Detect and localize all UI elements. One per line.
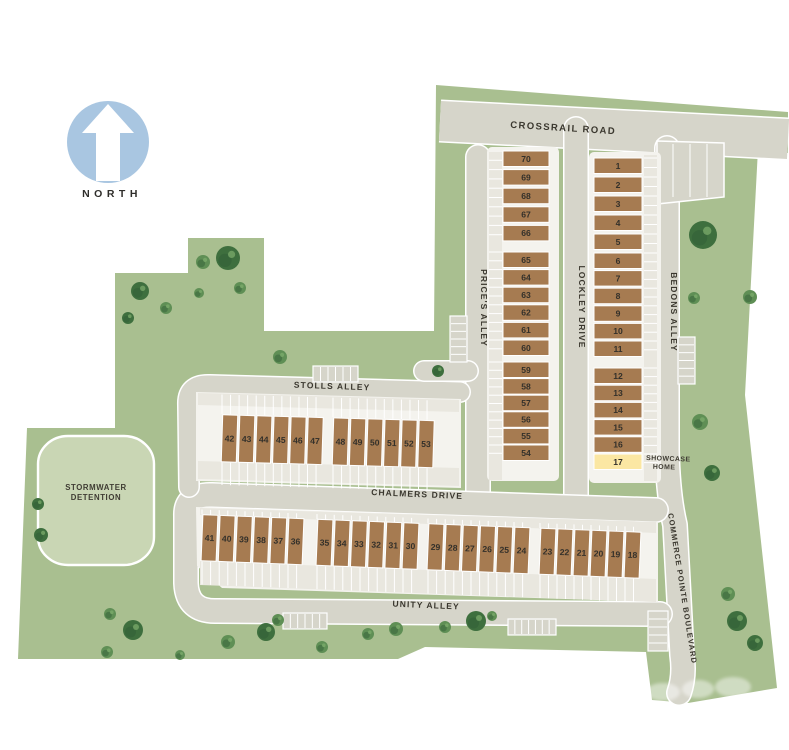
tree (194, 288, 204, 298)
lot-number: 49 (353, 437, 363, 447)
lot-69: 69 (503, 170, 549, 186)
lot-54: 54 (503, 445, 549, 461)
lot-17-showcase-home: 17 (594, 454, 642, 470)
lot-47: 47 (307, 417, 323, 464)
lot-number: 26 (482, 544, 492, 554)
lot-number: 69 (521, 172, 531, 182)
tree (32, 498, 44, 510)
lot-number: 11 (613, 344, 622, 354)
lot-number: 65 (521, 255, 531, 265)
lot-61: 61 (503, 322, 549, 338)
lot-number: 24 (517, 545, 527, 555)
lot-number: 61 (521, 325, 531, 335)
lot-22: 22 (556, 529, 573, 576)
lot-24: 24 (513, 527, 530, 574)
showcase-label-line2: HOME (653, 464, 676, 472)
stormwater-label-line2: DETENTION (71, 493, 121, 502)
prices-alley-label: PRICE'S ALLEY (479, 269, 489, 347)
lot-39: 39 (235, 516, 252, 563)
tree (234, 282, 246, 294)
lot-number: 12 (613, 371, 623, 381)
lot-number: 41 (205, 533, 215, 543)
lot-number: 14 (613, 405, 623, 415)
lot-number: 20 (594, 548, 604, 558)
tree (272, 614, 284, 626)
lot-53: 53 (418, 420, 434, 467)
lot-number: 43 (242, 434, 252, 444)
lot-number: 13 (613, 388, 623, 398)
lot-number: 18 (628, 550, 638, 560)
lot-28: 28 (444, 524, 461, 571)
east-driveway-strip (644, 155, 657, 481)
lot-number: 45 (276, 435, 286, 445)
lot-number: 31 (388, 540, 398, 550)
site-plan-map: 7069686766656463626160595857565554123456… (0, 0, 789, 750)
lot-70: 70 (503, 151, 549, 167)
lot-number: 70 (521, 154, 531, 164)
lot-31: 31 (385, 522, 402, 569)
lot-33: 33 (350, 521, 367, 568)
lot-number: 40 (222, 534, 232, 544)
lot-66: 66 (503, 225, 549, 241)
north-label: NORTH (82, 188, 142, 200)
lot-number: 53 (421, 439, 431, 449)
lot-55: 55 (503, 428, 549, 444)
lot-19: 19 (607, 531, 624, 578)
tree (131, 282, 149, 300)
lockley-drive-label: LOCKLEY DRIVE (577, 265, 587, 348)
lot-number: 2 (616, 180, 621, 190)
lot-59: 59 (503, 362, 549, 378)
lot-5: 5 (594, 234, 642, 250)
lot-number: 38 (256, 535, 266, 545)
lot-44: 44 (255, 416, 271, 463)
lot-52: 52 (401, 420, 417, 467)
lot-32: 32 (368, 521, 385, 568)
lot-number: 42 (225, 433, 235, 443)
lot-number: 7 (616, 273, 621, 283)
lot-number: 64 (521, 272, 531, 282)
lot-34: 34 (333, 520, 350, 567)
lot-20: 20 (590, 530, 607, 577)
tree (466, 611, 486, 631)
stormwater-detention-label: STORMWATER DETENTION (65, 483, 127, 502)
lot-number: 15 (613, 422, 623, 432)
lot-number: 27 (465, 543, 475, 553)
lot-10: 10 (594, 323, 642, 339)
tree (389, 622, 403, 636)
lot-8: 8 (594, 288, 642, 304)
lot-26: 26 (479, 526, 496, 573)
lot-number: 48 (336, 436, 346, 446)
lot-23: 23 (539, 528, 556, 575)
lot-67: 67 (503, 207, 549, 223)
lot-65: 65 (503, 252, 549, 268)
lot-29: 29 (427, 524, 444, 571)
lot-number: 59 (521, 365, 531, 375)
lot-3: 3 (594, 196, 642, 212)
lot-68: 68 (503, 188, 549, 204)
lot-number: 30 (406, 541, 416, 551)
lot-number: 9 (616, 309, 621, 319)
tree (704, 465, 720, 481)
lot-16: 16 (594, 437, 642, 453)
lot-49: 49 (349, 418, 365, 465)
lot-number: 34 (337, 538, 347, 548)
lot-37: 37 (270, 517, 287, 564)
lot-25: 25 (496, 527, 513, 574)
tree (273, 350, 287, 364)
tree (487, 611, 497, 621)
lot-38: 38 (253, 517, 270, 564)
lot-6: 6 (594, 253, 642, 269)
lot-number: 3 (616, 199, 621, 209)
lot-number: 62 (521, 308, 531, 318)
lot-36: 36 (287, 518, 304, 565)
lot-number: 29 (431, 542, 441, 552)
lot-12: 12 (594, 368, 642, 384)
tree (721, 587, 735, 601)
tree (160, 302, 172, 314)
tree (727, 611, 747, 631)
lot-number: 63 (521, 290, 531, 300)
tree (175, 650, 185, 660)
lot-number: 51 (387, 438, 397, 448)
tree (439, 621, 451, 633)
lot-4: 4 (594, 215, 642, 231)
lot-number: 56 (521, 415, 531, 425)
lot-60: 60 (503, 340, 549, 356)
lot-43: 43 (238, 415, 254, 462)
tree (689, 221, 717, 249)
tree (34, 528, 48, 542)
lot-51: 51 (384, 419, 400, 466)
lot-number: 32 (371, 539, 381, 549)
lot-50: 50 (366, 419, 382, 466)
lot-48: 48 (332, 418, 348, 465)
lot-13: 13 (594, 385, 642, 401)
tree (688, 292, 700, 304)
lot-number: 54 (521, 448, 531, 458)
lot-56: 56 (503, 412, 549, 428)
lot-11: 11 (594, 341, 642, 357)
lot-number: 28 (448, 543, 458, 553)
tree (316, 641, 328, 653)
lot-number: 47 (310, 436, 320, 446)
lot-1: 1 (594, 158, 642, 174)
tree (221, 635, 235, 649)
lot-number: 37 (273, 536, 283, 546)
lot-number: 67 (521, 210, 531, 220)
lot-number: 66 (521, 228, 531, 238)
tree (692, 414, 708, 430)
lot-number: 46 (293, 435, 303, 445)
lot-number: 68 (521, 191, 531, 201)
lot-number: 8 (616, 291, 621, 301)
lot-number: 21 (577, 548, 587, 558)
lot-number: 35 (320, 537, 330, 547)
lot-number: 50 (370, 437, 380, 447)
lot-number: 52 (404, 438, 414, 448)
lot-46: 46 (290, 417, 306, 464)
lot-number: 22 (560, 547, 570, 557)
lot-number: 4 (616, 218, 621, 228)
lot-number: 55 (521, 431, 531, 441)
lot-7: 7 (594, 271, 642, 287)
lot-42: 42 (221, 415, 237, 462)
lot-62: 62 (503, 305, 549, 321)
lot-number: 10 (613, 326, 623, 336)
lot-18: 18 (624, 532, 641, 579)
tree (432, 365, 444, 377)
lot-64: 64 (503, 270, 549, 286)
tree (216, 246, 240, 270)
lot-58: 58 (503, 379, 549, 395)
tree (257, 623, 275, 641)
lot-number: 16 (613, 440, 623, 450)
tree (362, 628, 374, 640)
lot-number: 5 (616, 237, 621, 247)
parking-pad (648, 611, 668, 651)
lot-number: 23 (543, 546, 553, 556)
stormwater-label-line1: STORMWATER (65, 483, 127, 492)
tree (122, 312, 134, 324)
tree (747, 635, 763, 651)
lot-number: 33 (354, 539, 364, 549)
lot-number: 6 (616, 256, 621, 266)
lot-number: 17 (613, 457, 623, 467)
lot-number: 19 (611, 549, 621, 559)
lot-14: 14 (594, 402, 642, 418)
bedons-alley-label: BEDONS ALLEY (669, 272, 679, 351)
lot-57: 57 (503, 395, 549, 411)
lot-2: 2 (594, 177, 642, 193)
tree (196, 255, 210, 269)
lot-number: 58 (521, 381, 531, 391)
lot-35: 35 (316, 519, 333, 566)
north-arrow: NORTH (67, 101, 149, 200)
tree (101, 646, 113, 658)
lot-number: 60 (521, 343, 531, 353)
lot-27: 27 (461, 525, 478, 572)
lot-number: 25 (499, 545, 509, 555)
lot-45: 45 (273, 416, 289, 463)
lot-number: 44 (259, 434, 269, 444)
lot-number: 39 (239, 534, 249, 544)
lot-41: 41 (201, 515, 218, 562)
lot-number: 1 (616, 161, 621, 171)
lot-30: 30 (402, 523, 419, 570)
lot-number: 57 (521, 398, 531, 408)
lot-15: 15 (594, 420, 642, 436)
tree (104, 608, 116, 620)
tree (743, 290, 757, 304)
lot-63: 63 (503, 287, 549, 303)
west-driveway-strip (489, 150, 502, 480)
lot-21: 21 (573, 530, 590, 577)
tree (123, 620, 143, 640)
lot-number: 36 (291, 536, 301, 546)
lot-9: 9 (594, 306, 642, 322)
lot-40: 40 (218, 515, 235, 562)
